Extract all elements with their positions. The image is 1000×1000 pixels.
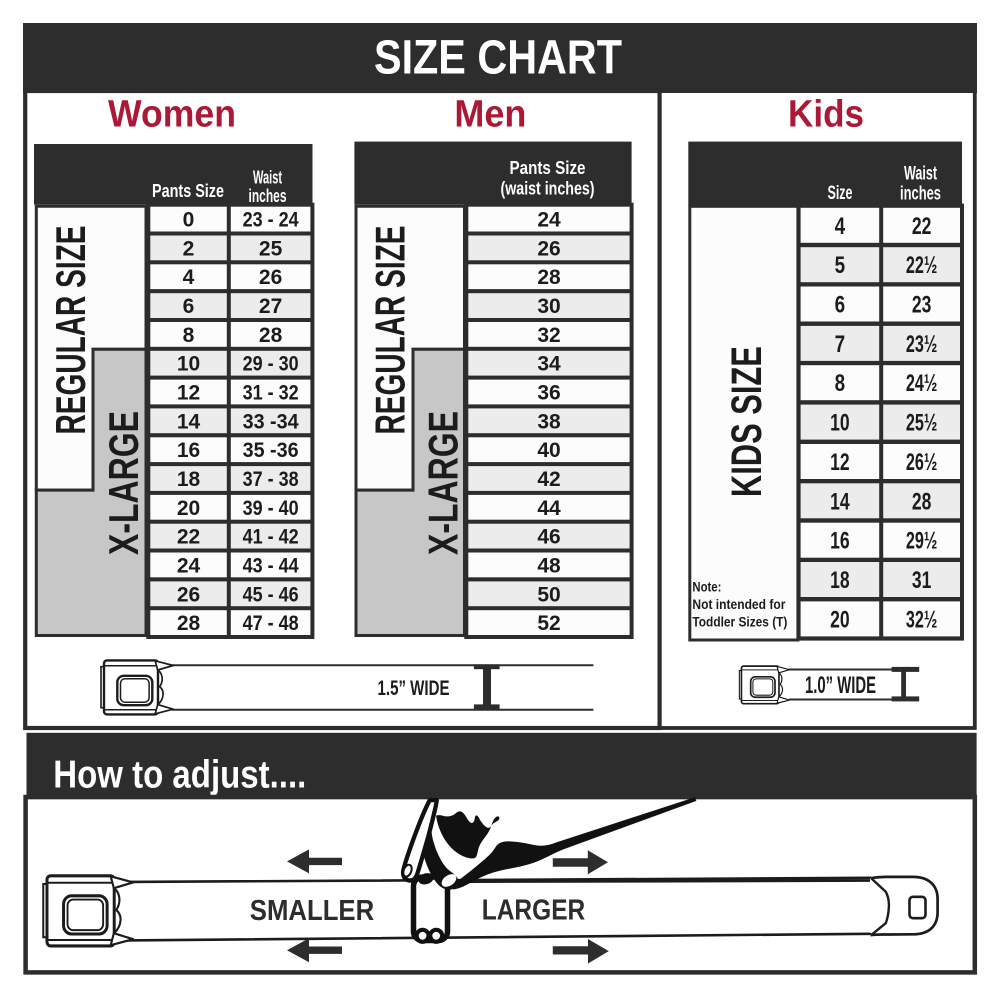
svg-text:4: 4 — [183, 266, 195, 289]
svg-text:16: 16 — [177, 439, 200, 462]
svg-text:32: 32 — [537, 324, 560, 347]
svg-text:22: 22 — [912, 213, 932, 240]
svg-text:1.5” WIDE: 1.5” WIDE — [378, 676, 450, 700]
svg-text:28: 28 — [177, 612, 201, 635]
svg-text:X-LARGE: X-LARGE — [420, 411, 467, 555]
svg-text:6: 6 — [835, 292, 846, 319]
svg-text:Men: Men — [454, 94, 526, 136]
svg-text:37 - 38: 37 - 38 — [243, 468, 299, 491]
svg-text:inches: inches — [900, 184, 941, 205]
svg-text:4: 4 — [835, 213, 846, 240]
svg-text:47 - 48: 47 - 48 — [243, 612, 299, 635]
svg-text:14: 14 — [177, 410, 201, 433]
svg-text:Pants Size: Pants Size — [510, 158, 586, 178]
svg-text:22½: 22½ — [906, 252, 938, 279]
svg-text:26: 26 — [259, 266, 282, 289]
svg-text:REGULAR SIZE: REGULAR SIZE — [47, 226, 94, 435]
svg-text:42: 42 — [537, 468, 560, 491]
svg-text:23: 23 — [912, 292, 932, 319]
svg-text:Waist: Waist — [904, 164, 937, 185]
svg-text:48: 48 — [537, 554, 561, 577]
svg-text:41 - 42: 41 - 42 — [243, 526, 299, 549]
svg-text:Note:: Note: — [692, 580, 721, 595]
svg-text:45 - 46: 45 - 46 — [243, 583, 299, 606]
svg-text:24½: 24½ — [906, 370, 938, 397]
svg-text:39 - 40: 39 - 40 — [243, 497, 299, 520]
svg-text:35 -36: 35 -36 — [243, 439, 299, 462]
svg-text:33 -34: 33 -34 — [243, 410, 299, 433]
svg-text:32½: 32½ — [906, 606, 938, 633]
svg-text:SMALLER: SMALLER — [250, 895, 374, 927]
svg-text:31 - 32: 31 - 32 — [243, 382, 299, 405]
svg-text:20: 20 — [177, 497, 200, 520]
svg-text:2: 2 — [183, 237, 195, 260]
svg-text:43 - 44: 43 - 44 — [243, 554, 299, 577]
svg-text:SIZE CHART: SIZE CHART — [374, 32, 622, 85]
svg-text:26½: 26½ — [906, 449, 938, 476]
svg-text:Size: Size — [828, 183, 853, 204]
svg-text:24: 24 — [537, 209, 561, 232]
svg-text:Not intended for: Not intended for — [692, 597, 786, 612]
svg-text:52: 52 — [537, 612, 560, 635]
svg-text:36: 36 — [537, 382, 560, 405]
svg-text:44: 44 — [537, 497, 561, 520]
svg-text:8: 8 — [183, 324, 195, 347]
svg-text:40: 40 — [537, 439, 560, 462]
svg-text:23 - 24: 23 - 24 — [243, 209, 299, 232]
svg-text:Kids: Kids — [788, 94, 864, 136]
svg-text:LARGER: LARGER — [482, 895, 586, 927]
svg-text:38: 38 — [537, 410, 561, 433]
svg-text:Pants Size: Pants Size — [152, 181, 224, 201]
svg-text:46: 46 — [537, 526, 560, 549]
svg-text:6: 6 — [183, 295, 195, 318]
svg-text:How to adjust....: How to adjust.... — [53, 754, 306, 797]
svg-text:25: 25 — [259, 237, 283, 260]
svg-text:50: 50 — [537, 583, 560, 606]
svg-text:31: 31 — [912, 567, 932, 594]
svg-text:25½: 25½ — [906, 410, 938, 437]
svg-text:26: 26 — [177, 583, 200, 606]
svg-text:X-LARGE: X-LARGE — [100, 411, 147, 555]
svg-text:28: 28 — [537, 266, 561, 289]
svg-text:0: 0 — [183, 209, 195, 232]
svg-text:24: 24 — [177, 554, 201, 577]
svg-text:34: 34 — [537, 353, 561, 376]
svg-text:7: 7 — [835, 331, 846, 358]
svg-text:29 - 30: 29 - 30 — [243, 353, 299, 376]
svg-text:Waist: Waist — [253, 167, 282, 187]
svg-text:18: 18 — [177, 468, 201, 491]
svg-text:18: 18 — [830, 567, 850, 594]
svg-text:28: 28 — [259, 324, 283, 347]
svg-text:(waist inches): (waist inches) — [501, 179, 595, 199]
svg-text:26: 26 — [537, 237, 560, 260]
svg-text:20: 20 — [830, 606, 850, 633]
svg-text:8: 8 — [835, 370, 846, 397]
svg-text:REGULAR SIZE: REGULAR SIZE — [367, 226, 414, 435]
svg-text:16: 16 — [830, 528, 850, 555]
svg-text:12: 12 — [177, 382, 200, 405]
svg-text:12: 12 — [830, 449, 850, 476]
svg-text:10: 10 — [830, 410, 850, 437]
svg-text:1.0” WIDE: 1.0” WIDE — [805, 672, 876, 699]
svg-text:10: 10 — [177, 353, 200, 376]
svg-text:KIDS SIZE: KIDS SIZE — [723, 346, 771, 497]
svg-text:Women: Women — [108, 94, 236, 136]
svg-text:23½: 23½ — [906, 331, 938, 358]
svg-text:29½: 29½ — [906, 528, 938, 555]
svg-text:22: 22 — [177, 526, 200, 549]
svg-text:Toddler Sizes (T): Toddler Sizes (T) — [692, 615, 787, 630]
svg-text:14: 14 — [830, 488, 850, 515]
svg-text:27: 27 — [259, 295, 282, 318]
svg-text:5: 5 — [835, 252, 846, 279]
svg-text:28: 28 — [912, 488, 932, 515]
svg-text:30: 30 — [537, 295, 560, 318]
